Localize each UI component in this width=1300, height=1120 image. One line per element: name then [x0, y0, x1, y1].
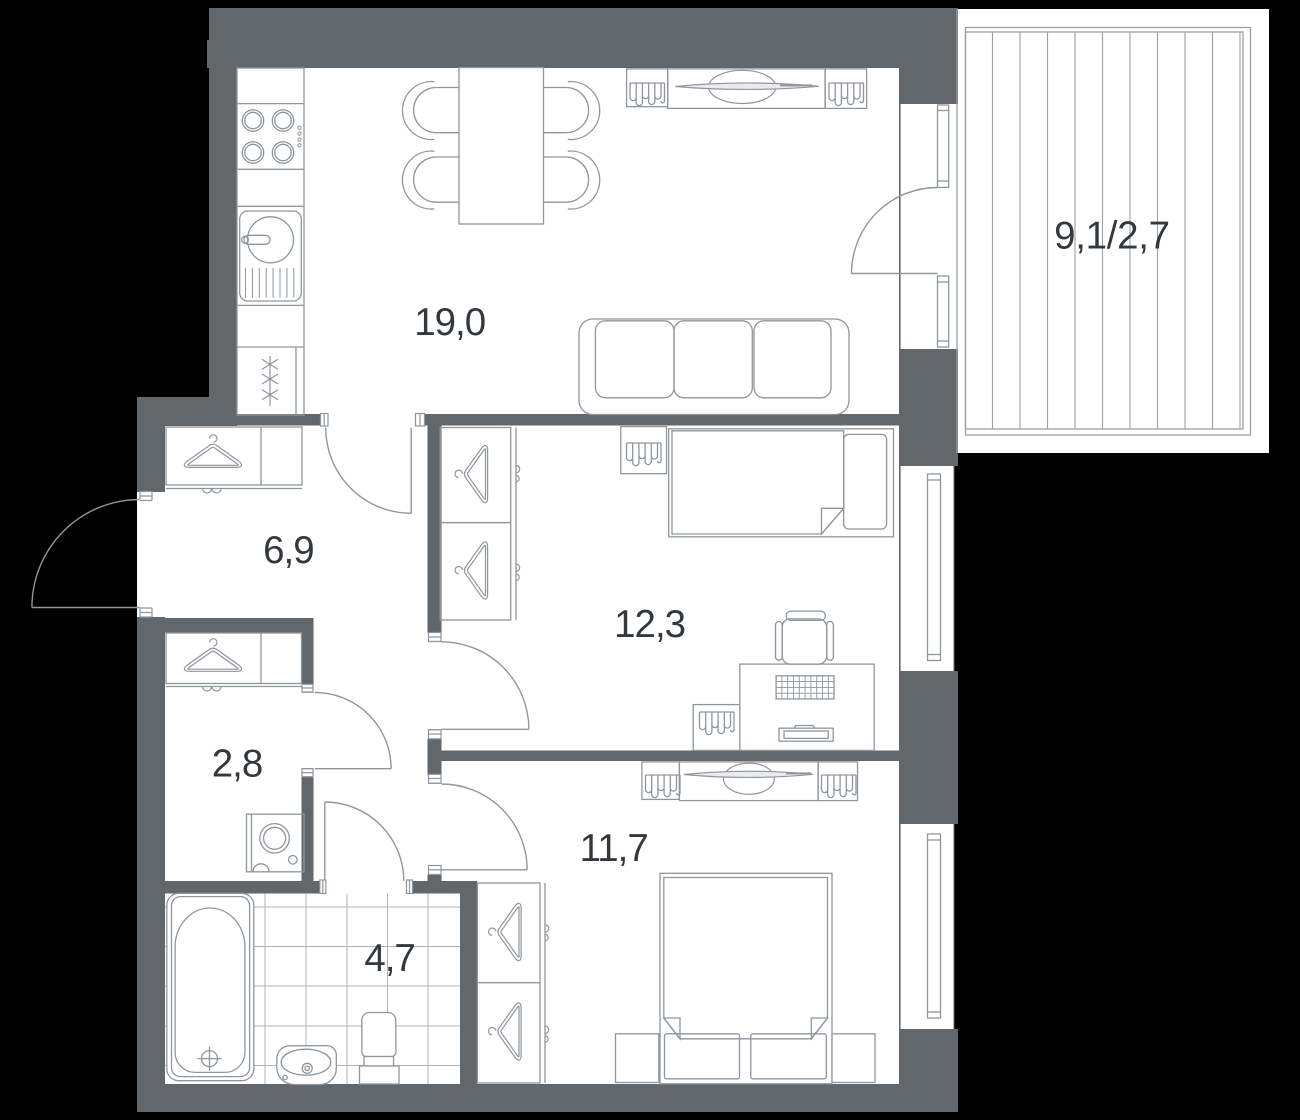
- svg-text:19,0: 19,0: [414, 301, 485, 344]
- svg-text:12,3: 12,3: [614, 603, 685, 646]
- svg-text:2,8: 2,8: [212, 743, 263, 786]
- svg-text:4,7: 4,7: [364, 937, 415, 980]
- svg-text:11,7: 11,7: [580, 827, 648, 870]
- svg-text:9,1/2,7: 9,1/2,7: [1054, 215, 1170, 258]
- svg-text:6,9: 6,9: [263, 529, 314, 572]
